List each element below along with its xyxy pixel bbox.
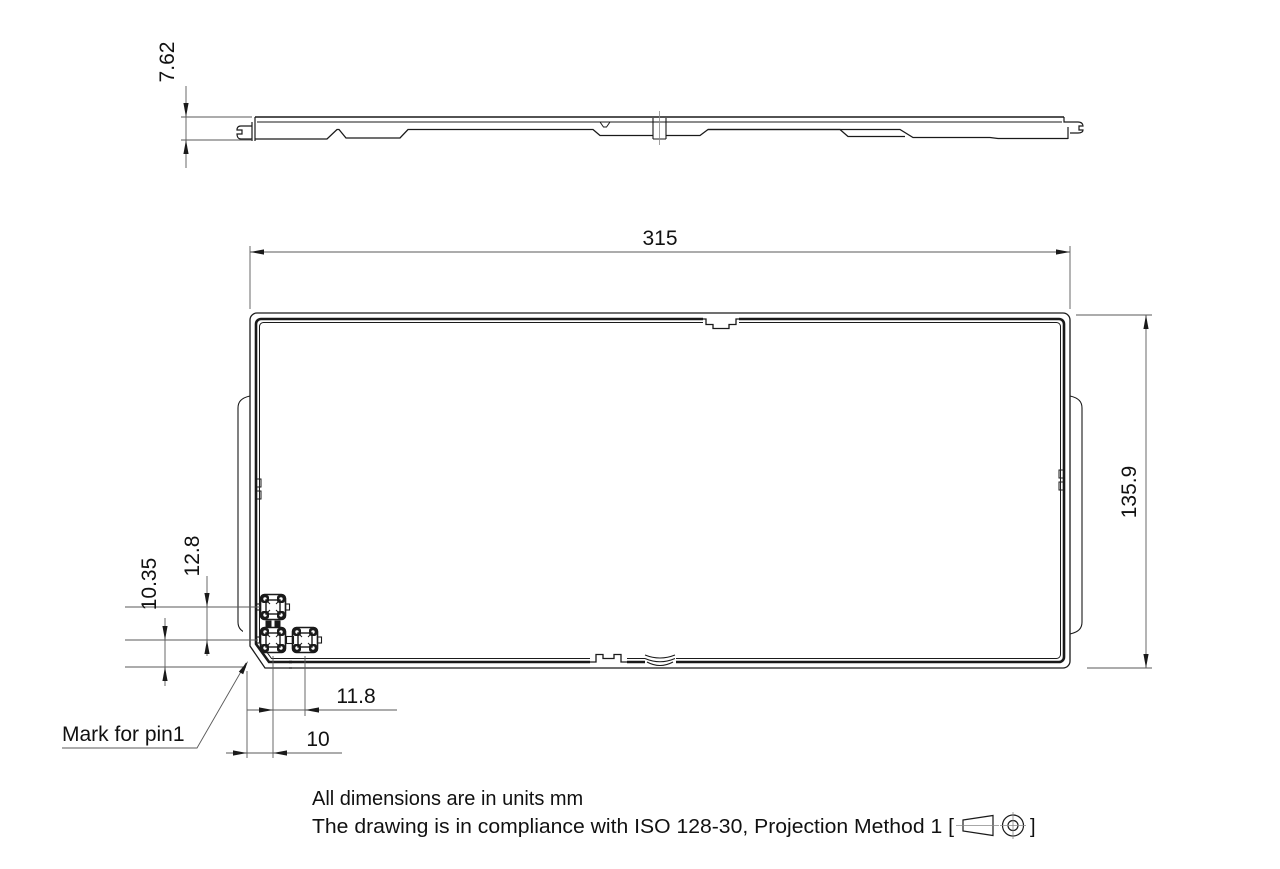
frame-inner <box>260 323 1061 659</box>
side-right-clip <box>1064 117 1083 139</box>
arrowhead <box>183 103 188 117</box>
side-view <box>237 111 1083 145</box>
note-units: All dimensions are in units mm <box>312 788 583 810</box>
dim-height-value: 135.9 <box>1118 466 1141 519</box>
side-bottom-step <box>708 130 905 137</box>
frame-outer <box>250 313 1070 668</box>
arrowhead <box>162 667 167 681</box>
dim-pin-bottom-offset-value: 10.35 <box>138 558 161 611</box>
arrowhead <box>305 707 319 712</box>
dimension-height: 135.9 <box>1076 315 1152 668</box>
engineering-drawing-page: 7.62 <box>0 0 1280 869</box>
notes: All dimensions are in units mm The drawi… <box>312 788 1036 839</box>
side-v-notch <box>600 122 610 127</box>
note-compliance: The drawing is in compliance with ISO 12… <box>312 816 954 838</box>
side-left-end <box>252 117 255 141</box>
dim-pin-vertical-pitch-value: 12.8 <box>181 536 204 577</box>
dim-thickness-value: 7.62 <box>156 42 179 83</box>
arrowhead <box>162 626 167 640</box>
pin1-callout-text: Mark for pin1 <box>62 723 185 746</box>
pin-packages <box>257 595 322 653</box>
interlink-pad <box>275 621 281 628</box>
arrowhead <box>259 707 273 712</box>
side-left-clip <box>237 126 252 139</box>
dimension-thickness: 7.62 <box>156 42 252 168</box>
arrowhead <box>183 140 188 154</box>
arrowhead <box>273 750 287 755</box>
pin-package-1 <box>257 595 290 620</box>
left-tab <box>238 396 250 634</box>
projection-method-icon <box>956 812 1026 839</box>
arrowhead <box>1056 249 1070 254</box>
arrowhead <box>204 640 209 654</box>
dimension-width: 315 <box>250 227 1070 309</box>
pin-package-3 <box>293 628 322 653</box>
dim-pin-horizontal-pitch-value: 11.8 <box>336 685 375 708</box>
dim-width-value: 315 <box>642 227 677 250</box>
dim-pin-left-offset-value: 10 <box>306 728 329 751</box>
drawing-svg: 7.62 <box>0 0 1280 869</box>
dimension-pin-left-offset: 10 <box>226 671 342 758</box>
arrowhead <box>1143 315 1148 329</box>
arrowhead <box>250 249 264 254</box>
arrowhead <box>233 750 247 755</box>
interlink-pad <box>266 621 272 628</box>
note-compliance-close-bracket: ] <box>1030 816 1036 838</box>
right-tab <box>1070 396 1082 634</box>
arrowhead <box>1143 654 1148 668</box>
side-bottom-left <box>255 130 653 140</box>
front-view <box>238 313 1082 676</box>
pin1-callout: Mark for pin1 <box>62 661 248 748</box>
arrowhead <box>204 593 209 607</box>
frame-heavy <box>256 319 1064 662</box>
